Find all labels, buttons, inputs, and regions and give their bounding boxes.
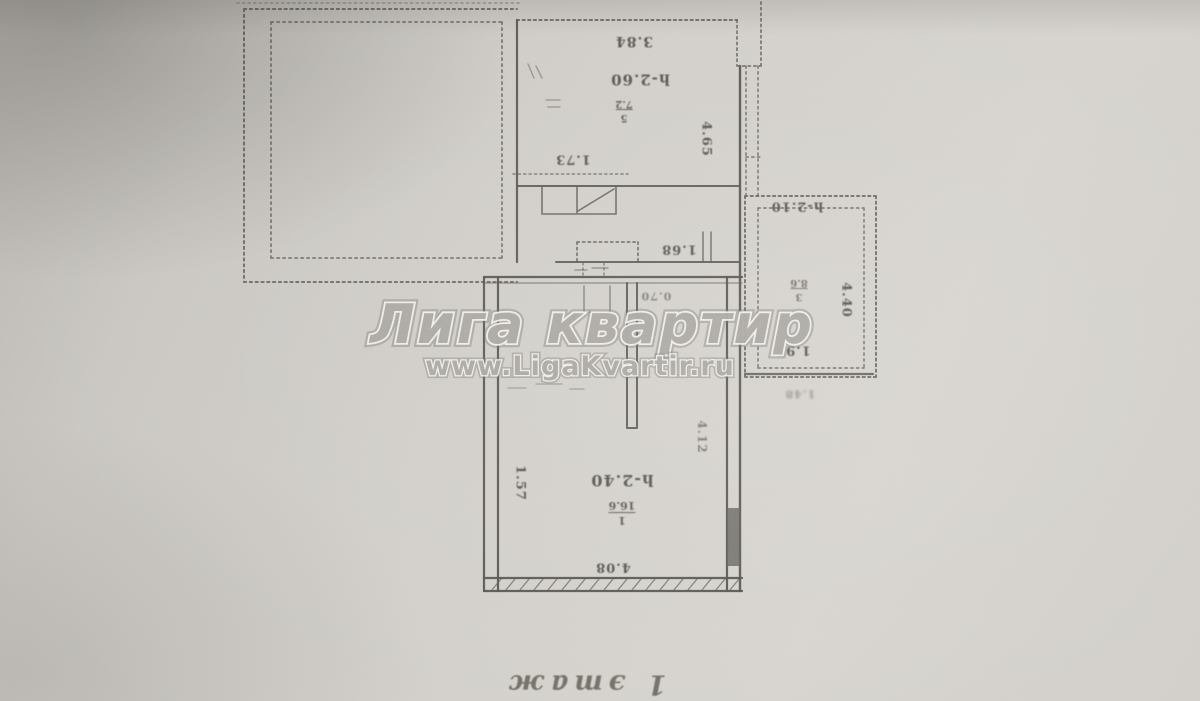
wall-right-upper-dotted — [746, 66, 762, 196]
dimension-label-right-room-width: 1.95 — [775, 344, 811, 357]
wall-main-left — [484, 277, 498, 591]
wall-shaft-dotted — [737, 2, 761, 66]
floor-plan-walls — [237, 2, 876, 591]
room-number: 1 — [618, 514, 626, 527]
room-area-fraction-right-room: 3 8.6 — [790, 277, 807, 301]
dimension-label-right-room-depth: 4.40 — [840, 282, 853, 318]
floorplan-photo: 3.84 h-2.60 5 7.2 1.73 1.68 4.65 h-2.10 … — [0, 0, 1200, 701]
faint-marks-top-room — [528, 64, 560, 107]
dimension-label-door-width: 0.70 — [641, 291, 672, 302]
floor-caption: 1 этаж — [504, 669, 667, 700]
dimension-label-main-room-left: 1.57 — [514, 465, 527, 501]
dimension-label-top-room-width: 3.84 — [615, 34, 653, 48]
dimension-label-top-room-depth: 4.65 — [700, 121, 713, 157]
room-number: 3 — [796, 291, 803, 302]
room-area: 7.2 — [615, 99, 632, 110]
stair-symbol — [542, 186, 616, 214]
wall-hall-notch-dotted — [577, 242, 638, 262]
door-leaf-right-wall — [727, 508, 740, 566]
fraction-bar — [615, 110, 632, 111]
room-area-fraction-top-room: 5 7.2 — [615, 98, 632, 122]
room-number: 5 — [621, 112, 628, 123]
wall-topleft-outer — [244, 9, 517, 282]
room-area: 8.6 — [790, 278, 807, 289]
wall-topleft-inner — [271, 22, 502, 258]
room-area: 16.6 — [609, 500, 636, 513]
faint-marks-main-room — [508, 384, 584, 389]
dimension-label-porch-width: 1.73 — [555, 153, 591, 166]
wall-main-interior — [627, 283, 637, 428]
floor-plan-drawing — [0, 0, 1200, 701]
dimension-label-hall-width: 1.68 — [661, 243, 697, 256]
dimension-label-main-room-width: 4.08 — [595, 561, 631, 574]
room-height-label-top-room: h-2.60 — [610, 72, 670, 87]
wall-main-bottom-hatch — [492, 579, 739, 590]
room-height-label-main-room: h-2.40 — [590, 472, 653, 488]
fraction-bar — [790, 289, 807, 290]
room-height-label-right-room: h-2.10 — [771, 200, 824, 213]
door-swing-rect — [584, 286, 610, 312]
dimension-label-right-room-note: 1.48 — [785, 389, 816, 400]
wall-hall-stub — [703, 232, 711, 262]
door-jamb-marks — [575, 268, 608, 270]
room-area-fraction-main-room: 1 16.6 — [609, 500, 636, 526]
dimension-label-main-room-right: 4.12 — [696, 420, 708, 453]
